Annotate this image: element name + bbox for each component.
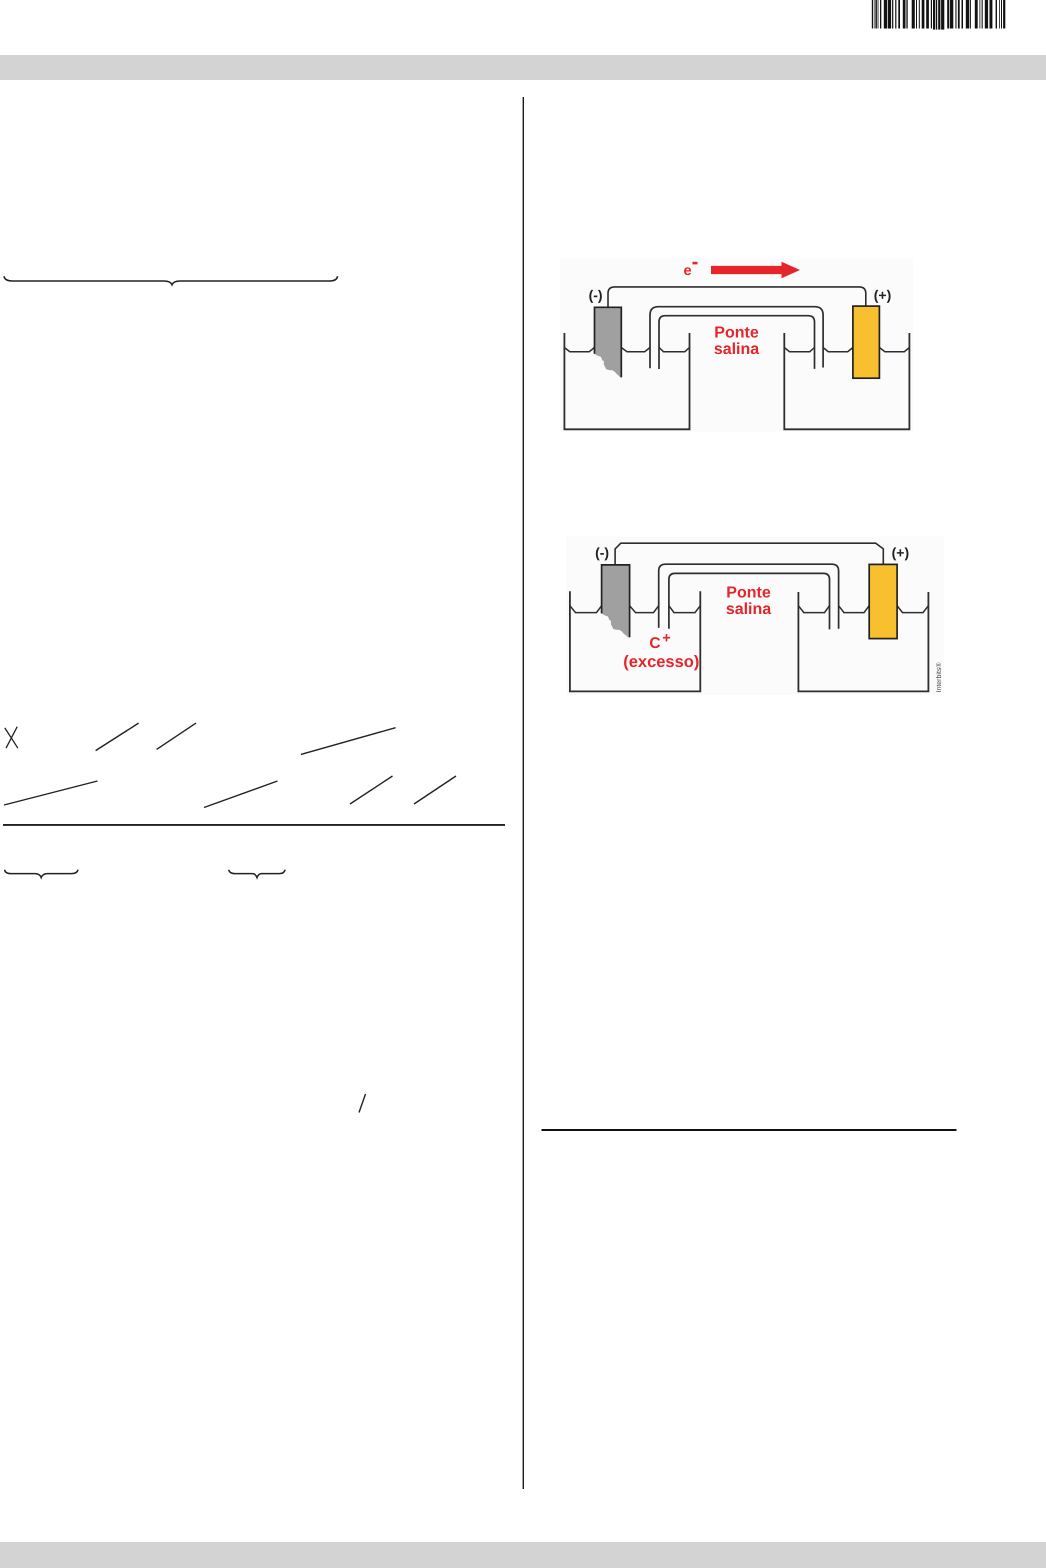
svg-text:(-): (-): [595, 545, 609, 561]
svg-text:C: C: [649, 635, 660, 652]
svg-text:Ponte: Ponte: [726, 584, 771, 601]
svg-text:salina: salina: [714, 341, 759, 358]
svg-text:salina: salina: [726, 601, 771, 618]
svg-text:(+): (+): [892, 545, 910, 561]
svg-text:Ponte: Ponte: [714, 325, 759, 342]
svg-text:Interbits®: Interbits®: [935, 662, 943, 693]
svg-text:e: e: [683, 263, 691, 279]
svg-text:(excesso): (excesso): [623, 653, 699, 671]
svg-text:+: +: [662, 631, 670, 647]
svg-text:(+): (+): [874, 287, 892, 303]
svg-text:(-): (-): [589, 287, 603, 303]
